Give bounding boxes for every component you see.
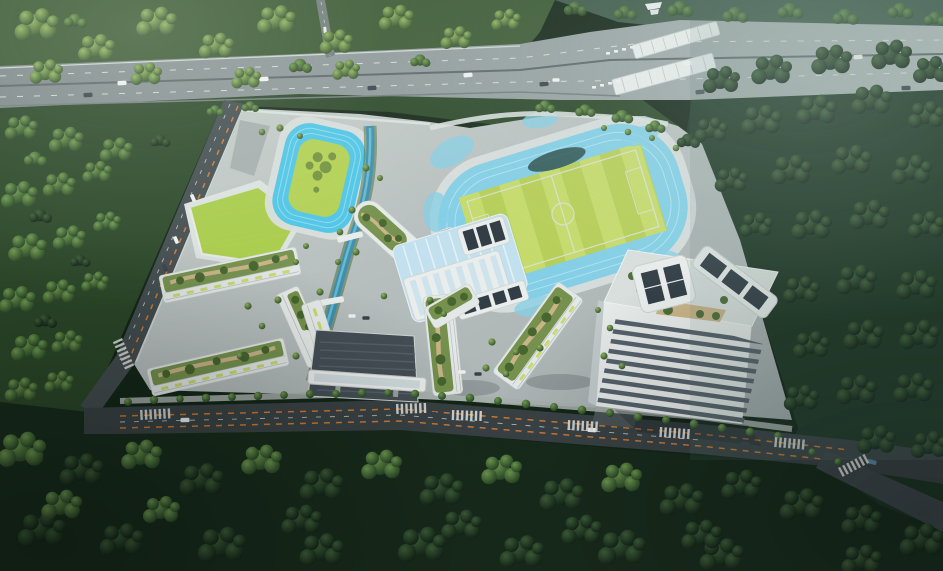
aerial-campus-rendering <box>0 0 943 571</box>
east-forest-mist <box>690 0 943 460</box>
